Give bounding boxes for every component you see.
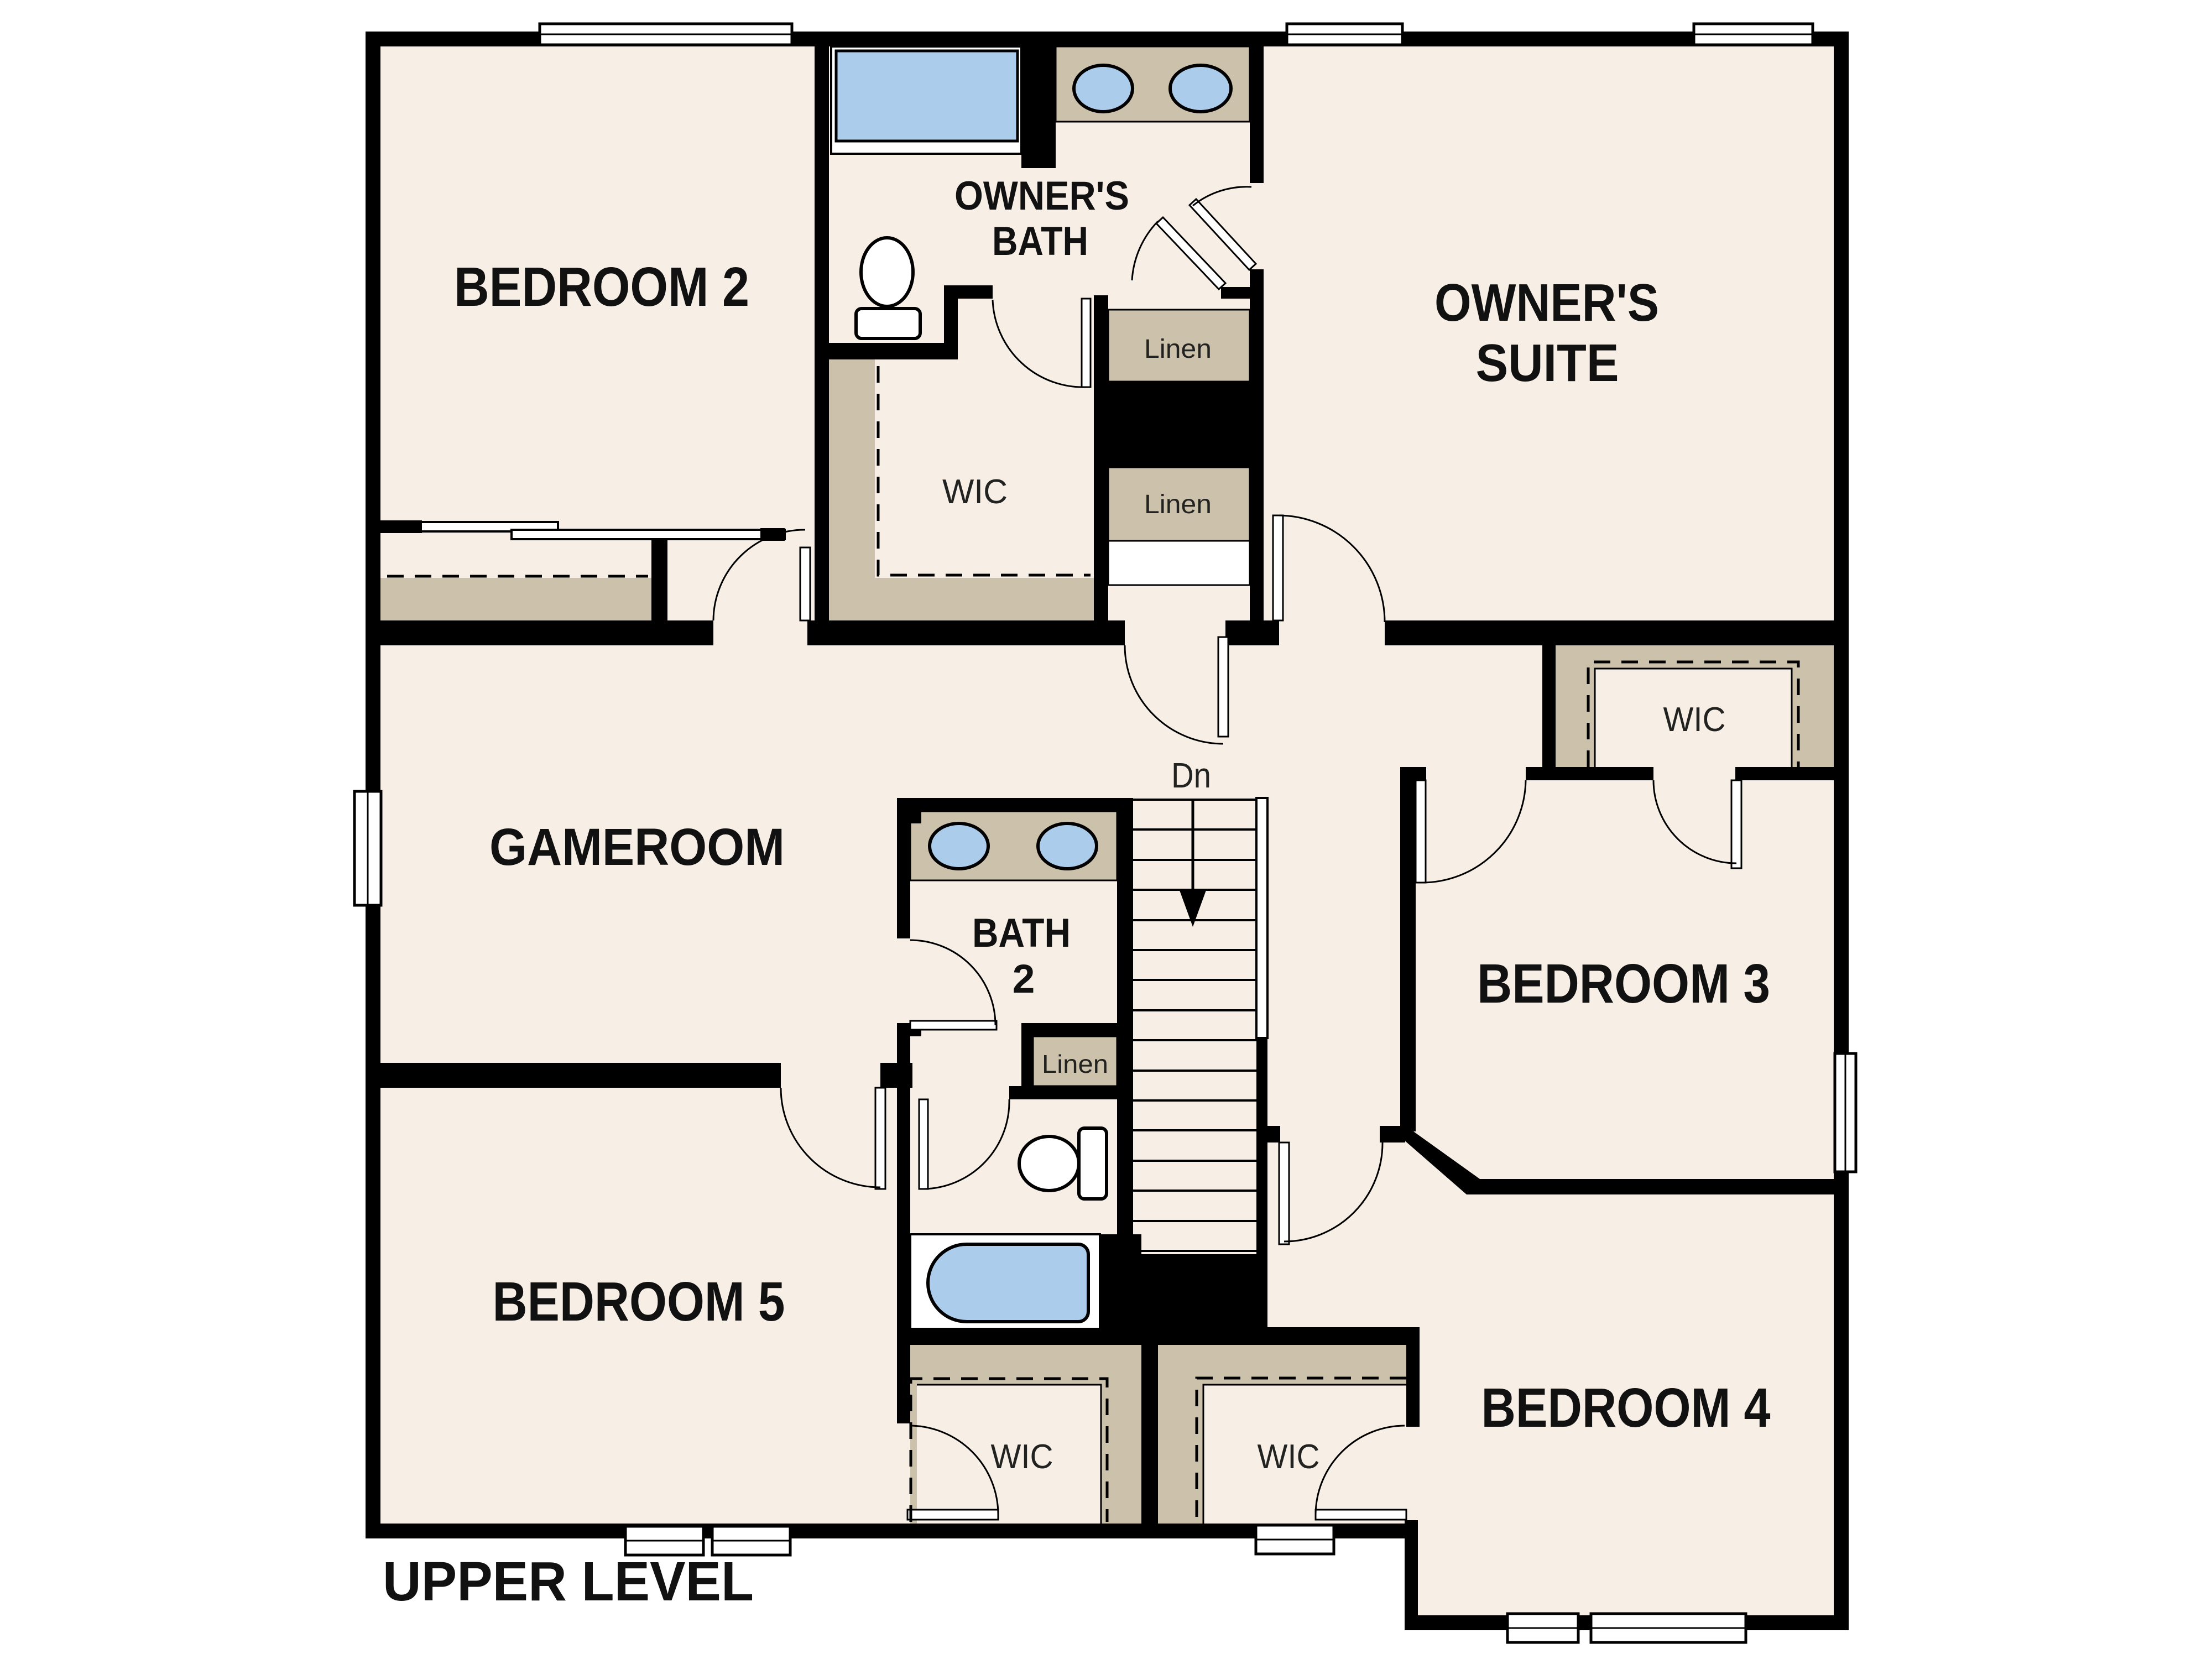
- svg-text:BEDROOM 3: BEDROOM 3: [1477, 953, 1770, 1015]
- svg-text:WIC: WIC: [1258, 1438, 1320, 1476]
- svg-text:WIC: WIC: [1663, 701, 1726, 739]
- svg-text:BATH: BATH: [992, 219, 1088, 264]
- svg-text:BATH: BATH: [972, 911, 1071, 956]
- svg-text:WIC: WIC: [991, 1438, 1053, 1476]
- svg-text:2: 2: [1013, 957, 1035, 1001]
- svg-text:OWNER'S: OWNER'S: [954, 174, 1129, 218]
- svg-text:OWNER'S: OWNER'S: [1434, 273, 1659, 332]
- svg-text:BEDROOM 5: BEDROOM 5: [493, 1271, 785, 1333]
- svg-text:Linen: Linen: [1144, 335, 1212, 364]
- svg-text:BEDROOM 2: BEDROOM 2: [454, 256, 749, 318]
- svg-text:Dn: Dn: [1171, 755, 1211, 795]
- svg-text:Linen: Linen: [1144, 490, 1212, 519]
- svg-text:WIC: WIC: [942, 473, 1008, 511]
- svg-text:GAMEROOM: GAMEROOM: [489, 818, 785, 877]
- svg-text:SUITE: SUITE: [1476, 333, 1619, 393]
- svg-text:Linen: Linen: [1042, 1050, 1108, 1078]
- svg-text:UPPER LEVEL: UPPER LEVEL: [383, 1551, 754, 1613]
- svg-text:BEDROOM 4: BEDROOM 4: [1481, 1377, 1771, 1439]
